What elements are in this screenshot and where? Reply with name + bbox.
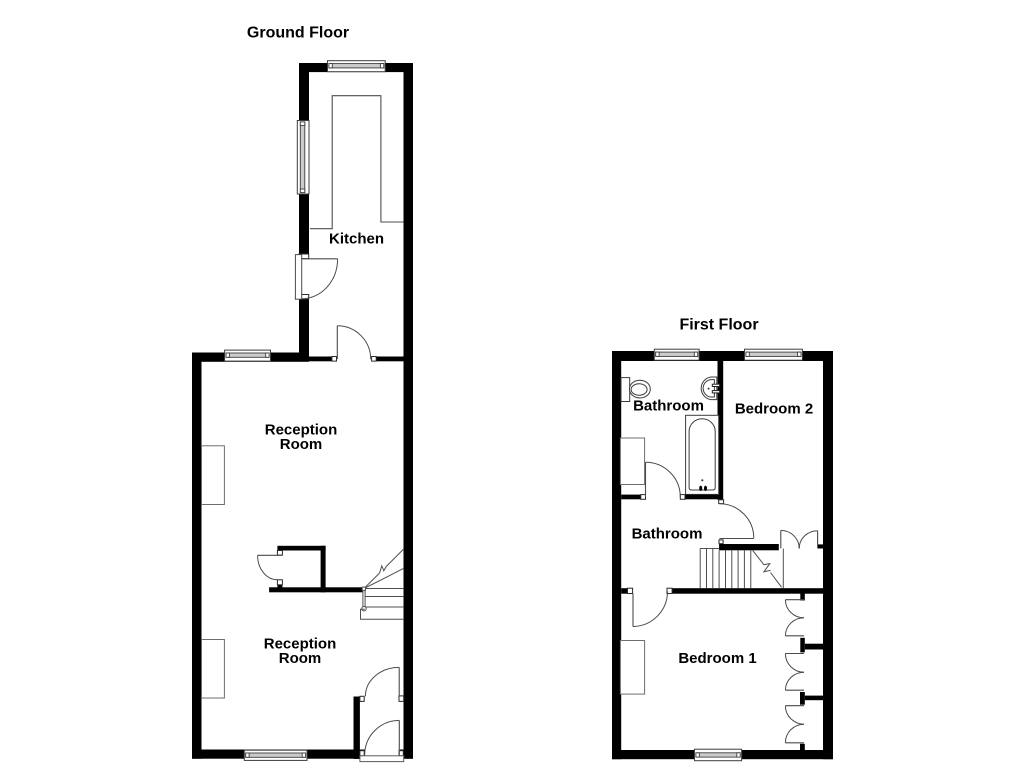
svg-text:Room: Room (279, 650, 322, 667)
svg-text:Ground Floor: Ground Floor (247, 25, 349, 42)
svg-text:Bedroom 1: Bedroom 1 (678, 650, 756, 667)
svg-text:Bedroom 2: Bedroom 2 (735, 401, 813, 418)
svg-text:Bathroom: Bathroom (632, 526, 703, 543)
svg-text:Room: Room (280, 436, 323, 453)
svg-text:First Floor: First Floor (679, 317, 758, 334)
svg-text:Bathroom: Bathroom (633, 398, 704, 415)
svg-text:Kitchen: Kitchen (329, 231, 384, 248)
